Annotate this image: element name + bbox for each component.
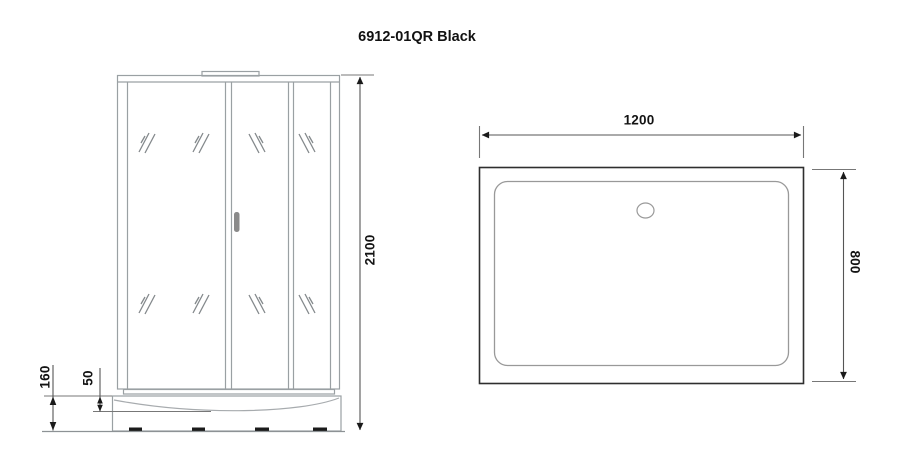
dim-label-depth: 800 bbox=[848, 250, 863, 273]
door-handle-icon bbox=[234, 212, 240, 232]
dim-1200 bbox=[480, 126, 804, 158]
shower-tray-front bbox=[113, 396, 342, 431]
tray-outer-rect bbox=[480, 168, 804, 384]
dim-800 bbox=[812, 170, 856, 382]
bottom-track bbox=[124, 390, 335, 395]
dim-label-width: 1200 bbox=[624, 113, 655, 128]
technical-drawing: 6912-01QR Black 2100 160 50 1200 800 bbox=[0, 0, 907, 468]
dim-label-tray-height: 160 bbox=[38, 365, 53, 388]
tray-curve bbox=[114, 398, 339, 411]
door-dividers bbox=[226, 82, 294, 389]
top-view-dimensions bbox=[480, 126, 857, 382]
cabin-frame bbox=[118, 76, 340, 390]
dim-160 bbox=[44, 365, 112, 431]
dim-label-total-height: 2100 bbox=[363, 235, 378, 266]
top-view bbox=[480, 168, 804, 384]
tray-inner-rect bbox=[495, 182, 789, 366]
drain-icon bbox=[637, 203, 654, 218]
drawing-title: 6912-01QR Black bbox=[358, 29, 476, 45]
dim-label-tray-lip: 50 bbox=[81, 370, 96, 385]
drawing-canvas bbox=[0, 0, 907, 468]
